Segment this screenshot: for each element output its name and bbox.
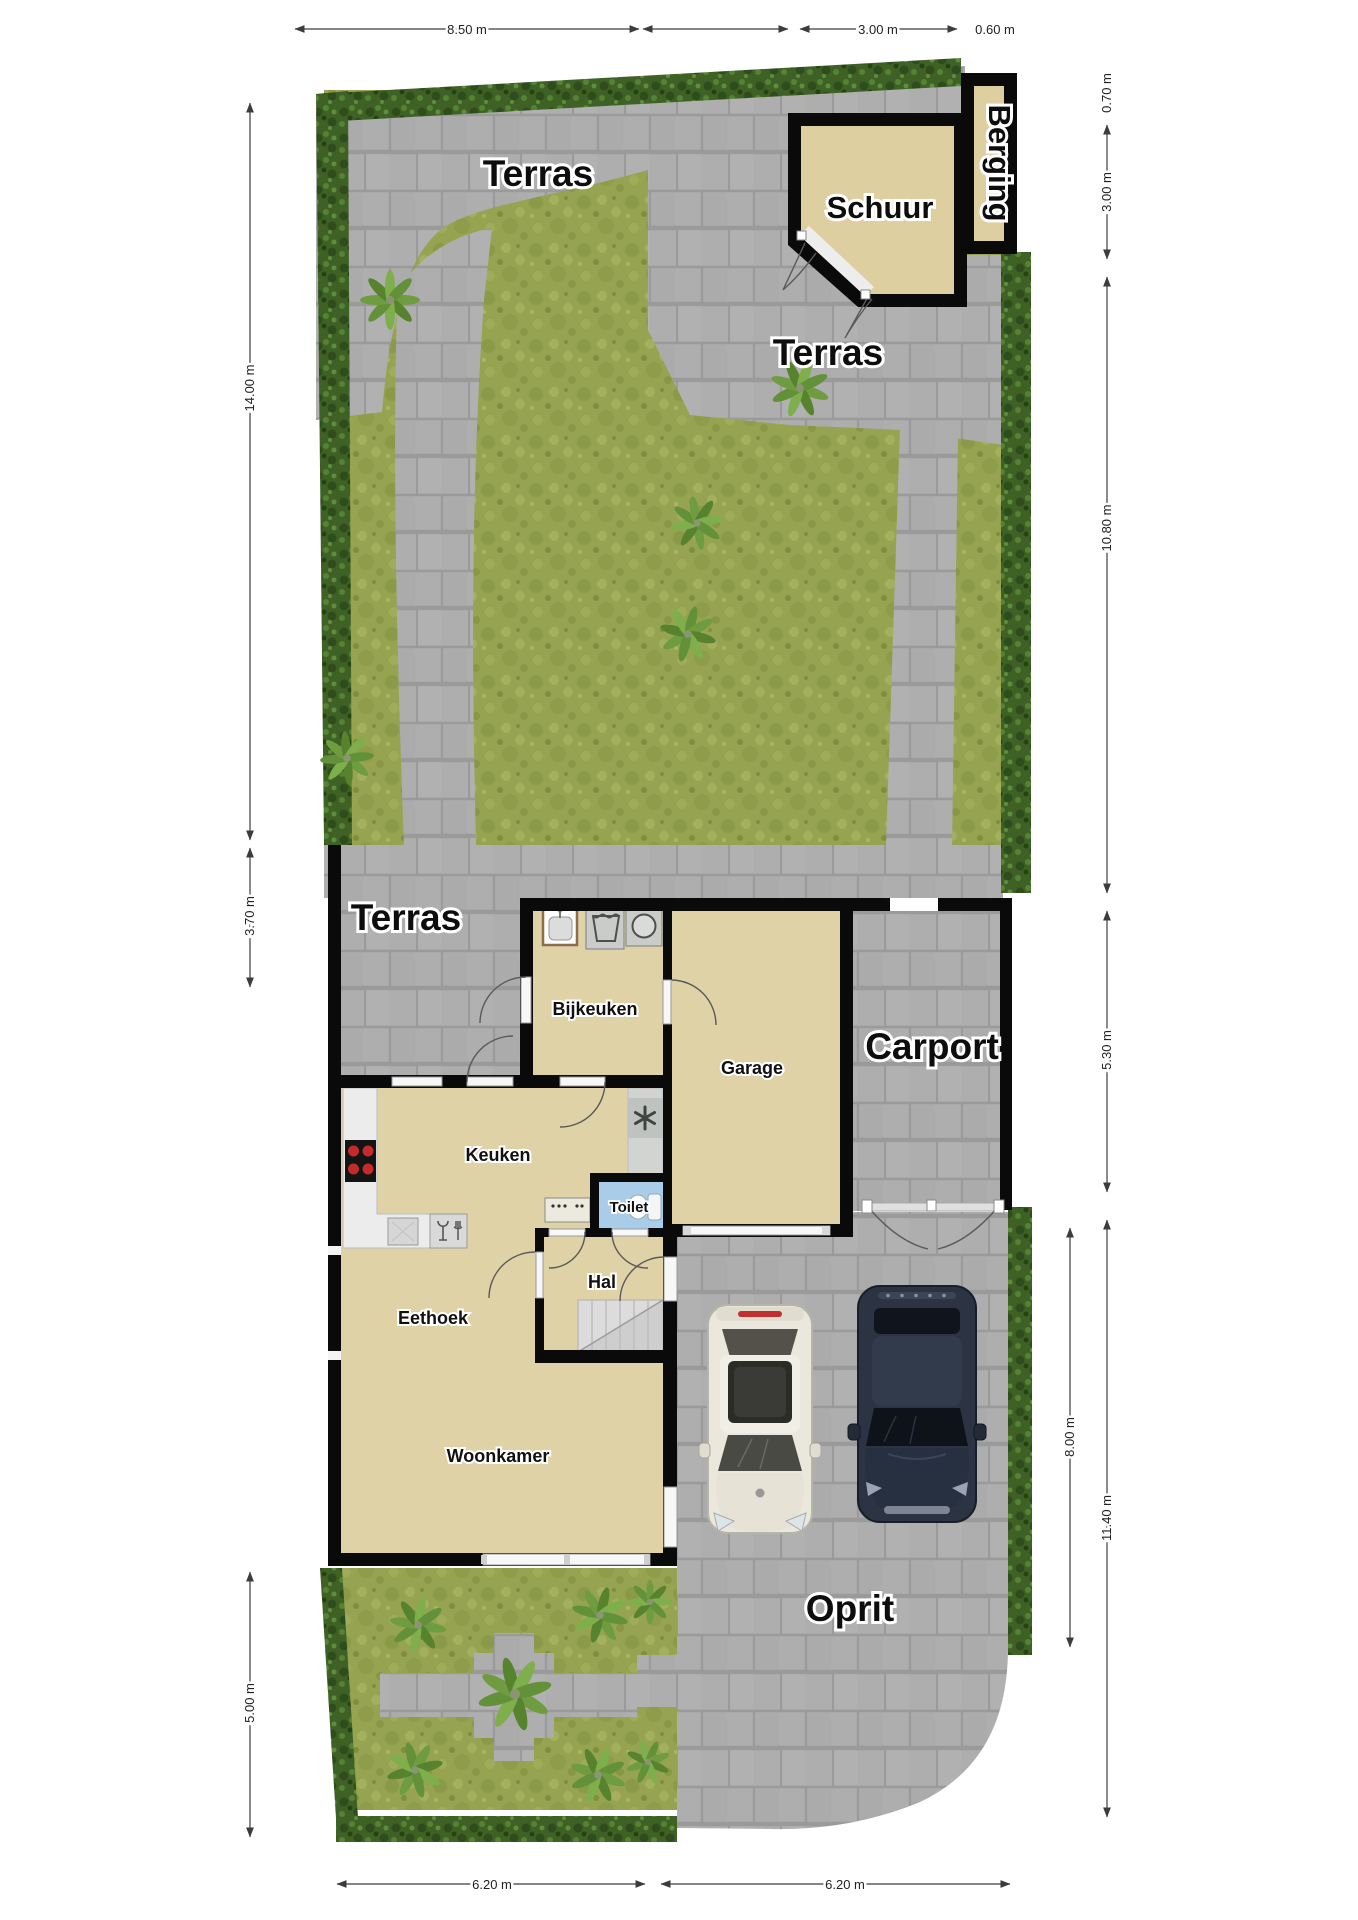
dim-right-800: 8.00 m <box>1062 1417 1077 1457</box>
livingroom-window-east <box>664 1487 677 1547</box>
hedge-right-driveway <box>1008 1207 1032 1655</box>
dryer-icon <box>626 906 662 946</box>
utility-sink-icon <box>543 908 577 945</box>
room-label-toilet: Toilet <box>610 1199 649 1216</box>
area-label-terras-mid: Terras <box>773 332 883 373</box>
dim-top-060: 0.60 m <box>975 22 1015 37</box>
kitchen-window <box>392 1077 442 1086</box>
dim-right-300: 3.00 m <box>1099 172 1114 212</box>
kitchen-terrace-door <box>467 1077 513 1086</box>
washing-machine-icon <box>586 906 624 949</box>
hedge-left <box>316 91 352 845</box>
floorplan-canvas: Terras Schuur Berging Terras Terras Carp… <box>0 0 1358 1920</box>
area-label-berging: Berging <box>982 104 1017 221</box>
area-label-terras-lower: Terras <box>351 897 461 938</box>
utility-appliances <box>543 906 662 949</box>
dim-top-300: 3.00 m <box>858 22 898 37</box>
dim-left-370: 3.70 m <box>242 896 257 936</box>
dim-right-530: 5.30 m <box>1099 1030 1114 1070</box>
dim-right-1140: 11.40 m <box>1099 1495 1114 1541</box>
front-door <box>664 1257 677 1301</box>
garage-door <box>683 1226 830 1235</box>
room-label-hal: Hal <box>588 1272 616 1292</box>
wall-vent-2 <box>328 1351 341 1360</box>
room-label-eethoek: Eethoek <box>398 1308 469 1328</box>
hall-door-1 <box>549 1229 585 1236</box>
room-label-garage: Garage <box>721 1058 783 1078</box>
dim-bottom-620-left: 6.20 m <box>472 1877 512 1892</box>
hedge-front-bottom <box>336 1816 677 1842</box>
utility-terrace-door <box>521 977 531 1023</box>
hall-living-door <box>536 1252 543 1298</box>
staircase <box>578 1300 663 1352</box>
dim-bottom-620-right: 6.20 m <box>825 1877 865 1892</box>
room-label-keuken: Keuken <box>465 1145 530 1165</box>
white-car <box>699 1305 821 1533</box>
area-label-schuur: Schuur <box>827 190 934 225</box>
dim-right-1080: 10.80 m <box>1099 505 1114 552</box>
area-label-terras-top: Terras <box>483 153 593 194</box>
toilet-door <box>612 1229 648 1236</box>
hob-icon <box>345 1140 376 1182</box>
wall-vent-1 <box>328 1246 341 1255</box>
dim-left-1400: 14.00 m <box>242 365 257 412</box>
utility-kitchen-door <box>560 1077 605 1086</box>
area-label-carport: Carport <box>865 1026 999 1067</box>
dishwasher-icon <box>430 1214 467 1248</box>
dim-top-850: 8.50 m <box>447 22 487 37</box>
shaft <box>628 1088 663 1182</box>
room-label-woonkamer: Woonkamer <box>447 1446 550 1466</box>
kitchen-sink-icon <box>388 1218 418 1245</box>
room-label-bijkeuken: Bijkeuken <box>552 999 637 1019</box>
dark-car <box>848 1286 986 1522</box>
meter-cabinet <box>545 1198 590 1222</box>
hedge-right-garden <box>1001 252 1031 893</box>
area-label-oprit: Oprit <box>806 1588 894 1629</box>
floorplan-page: Terras Schuur Berging Terras Terras Carp… <box>0 0 1358 1920</box>
utility-garage-door <box>663 980 671 1024</box>
dim-right-070: 0.70 m <box>1099 73 1114 113</box>
dim-left-500: 5.00 m <box>242 1683 257 1723</box>
